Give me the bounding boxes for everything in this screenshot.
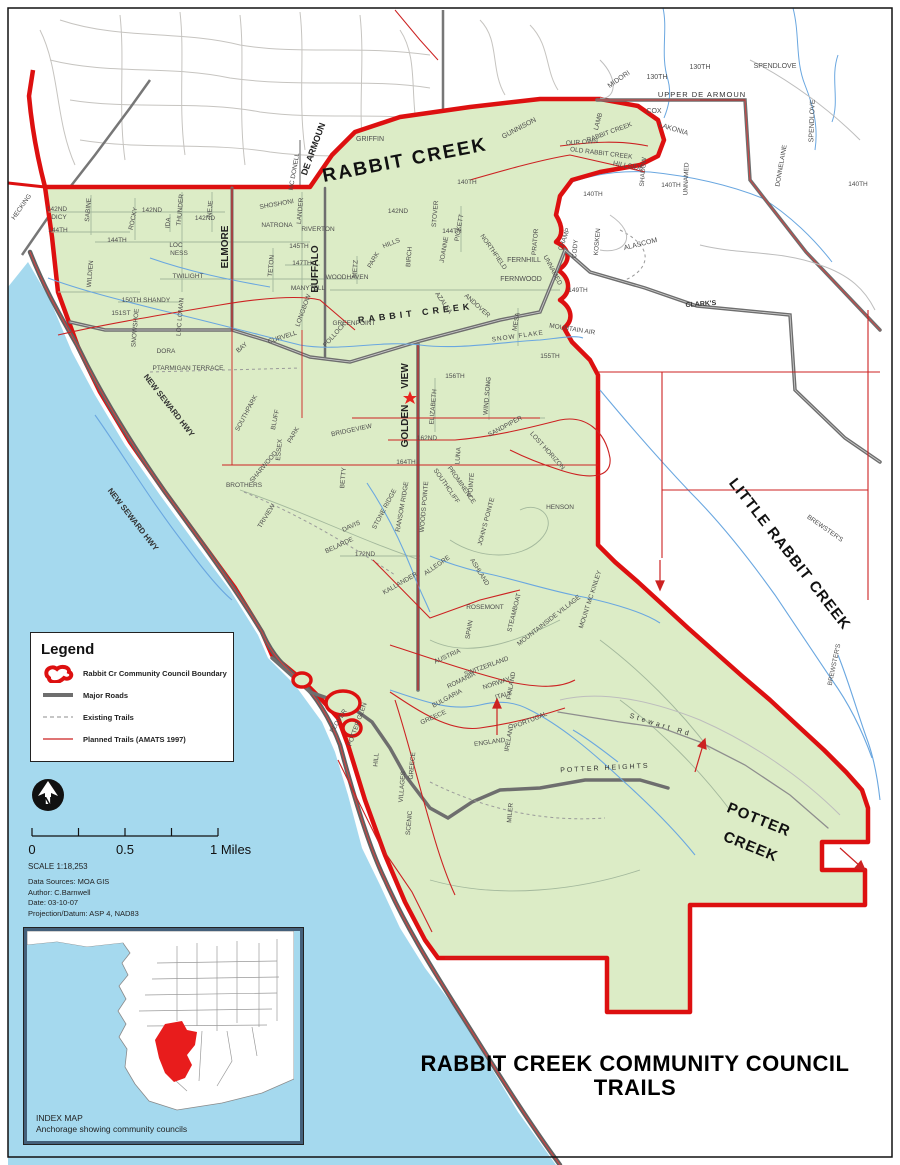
- map-label: DORA: [157, 348, 176, 355]
- map-label: ROSEMONT: [466, 604, 504, 611]
- map-label: SPENDLOVE: [754, 63, 797, 70]
- scale-ratio: SCALE 1:18,253: [28, 862, 88, 871]
- map-label: 172ND: [355, 551, 376, 558]
- north-arrow-letter: N: [43, 794, 52, 809]
- existing-trails-swatch-icon: [41, 707, 75, 727]
- legend-item-major-roads: Major Roads: [41, 684, 233, 706]
- map-label: FERNWOOD: [500, 276, 542, 283]
- scale-tick-1: 1 Miles: [210, 842, 252, 857]
- map-label: 155TH: [540, 353, 560, 360]
- map-label: NESS: [170, 250, 188, 257]
- map-page: RABBIT CREEKLITTLE RABBIT CREEKPOTTERCRE…: [0, 0, 900, 1165]
- map-label: 142ND: [195, 215, 216, 222]
- north-arrow-icon: N: [30, 777, 66, 813]
- major-roads-swatch-icon: [41, 685, 75, 705]
- map-label: 130TH: [646, 74, 667, 81]
- legend-panel: Legend Rabbit Cr Community Council Bound…: [30, 632, 234, 762]
- map-label: GOLDEN: [400, 405, 411, 448]
- map-label: UNNAMED: [682, 162, 690, 195]
- map-title: RABBIT CREEK COMMUNITY COUNCIL TRAILS: [400, 1052, 870, 1100]
- map-label: 144TH: [107, 237, 127, 244]
- legend-item-label: Existing Trails: [83, 713, 134, 722]
- map-label: WOODHAVEN: [326, 274, 369, 281]
- map-label: GRIFFIN: [356, 136, 384, 143]
- map-label: 150TH SHANDY: [122, 297, 171, 304]
- note-date: Date: 03-10-07: [28, 898, 139, 909]
- index-caption-line2: Anchorage showing community councils: [36, 1124, 187, 1135]
- note-data-sources: Data Sources: MOA GIS: [28, 877, 139, 888]
- map-label: PTARMIGAN TERRACE: [153, 365, 225, 372]
- map-label: HENSON: [546, 504, 574, 511]
- legend-item-label: Major Roads: [83, 691, 128, 700]
- map-label: 140TH: [583, 191, 603, 198]
- map-label: LOC: [169, 242, 183, 249]
- map-label: 144TH: [48, 227, 68, 234]
- map-label: 162ND: [417, 435, 438, 442]
- legend-item-boundary: Rabbit Cr Community Council Boundary: [41, 662, 233, 684]
- legend-item-planned-trails: Planned Trails (AMATS 1997): [41, 728, 233, 750]
- legend-title: Legend: [41, 641, 233, 658]
- map-label: 147TH: [292, 260, 312, 267]
- index-map-canvas: [27, 931, 294, 1135]
- map-label: ELMORE: [220, 225, 231, 268]
- map-label: MANYTELL: [291, 285, 326, 292]
- map-label: DICY: [51, 214, 67, 221]
- map-label: 140TH: [457, 179, 477, 186]
- map-label: VIEW: [400, 363, 411, 389]
- map-label: 142ND: [142, 207, 163, 214]
- map-label: 140TH: [661, 182, 681, 189]
- map-notes: Data Sources: MOA GIS Author: C.Barnwell…: [28, 877, 139, 919]
- legend-item-label: Rabbit Cr Community Council Boundary: [83, 669, 227, 678]
- map-label: 164TH: [396, 459, 416, 466]
- index-caption-line1: INDEX MAP: [36, 1113, 187, 1124]
- map-label: 151ST: [111, 310, 130, 317]
- index-map-panel: INDEX MAP Anchorage showing community co…: [24, 928, 303, 1144]
- map-label: UPPER DE ARMOUN: [658, 90, 746, 99]
- legend-item-label: Planned Trails (AMATS 1997): [83, 735, 186, 744]
- planned-trails-swatch-icon: [41, 729, 75, 749]
- map-label: 156TH: [445, 373, 465, 380]
- scale-tick-0: 0: [28, 842, 35, 857]
- map-label: 142ND: [47, 206, 68, 213]
- map-label: 142ND: [388, 208, 409, 215]
- note-author: Author: C.Barnwell: [28, 888, 139, 899]
- boundary-swatch-icon: [41, 663, 75, 683]
- index-map-caption: INDEX MAP Anchorage showing community co…: [36, 1113, 187, 1135]
- map-label: RIVERTON: [301, 226, 335, 233]
- map-label: FERNHILL: [507, 257, 541, 264]
- map-label: 145TH: [289, 243, 309, 250]
- map-label: 149TH: [568, 287, 588, 294]
- map-title-line2: TRAILS: [400, 1076, 870, 1100]
- scale-bar: 0 0.5 1 Miles: [22, 818, 292, 862]
- map-label: BROTHERS: [226, 482, 263, 489]
- note-projection: Projection/Datum: ASP 4, NAD83: [28, 909, 139, 920]
- map-title-line1: RABBIT CREEK COMMUNITY COUNCIL: [400, 1052, 870, 1076]
- map-label: COX: [646, 108, 662, 115]
- map-label: TWILIGHT: [172, 273, 203, 280]
- map-label: 130TH: [689, 64, 710, 71]
- map-label: 140TH: [848, 181, 868, 188]
- scale-tick-05: 0.5: [116, 842, 134, 857]
- map-label: NATRONA: [261, 222, 293, 229]
- legend-item-existing-trails: Existing Trails: [41, 706, 233, 728]
- map-label: HILL: [372, 752, 380, 767]
- map-label: IDA: [165, 217, 173, 229]
